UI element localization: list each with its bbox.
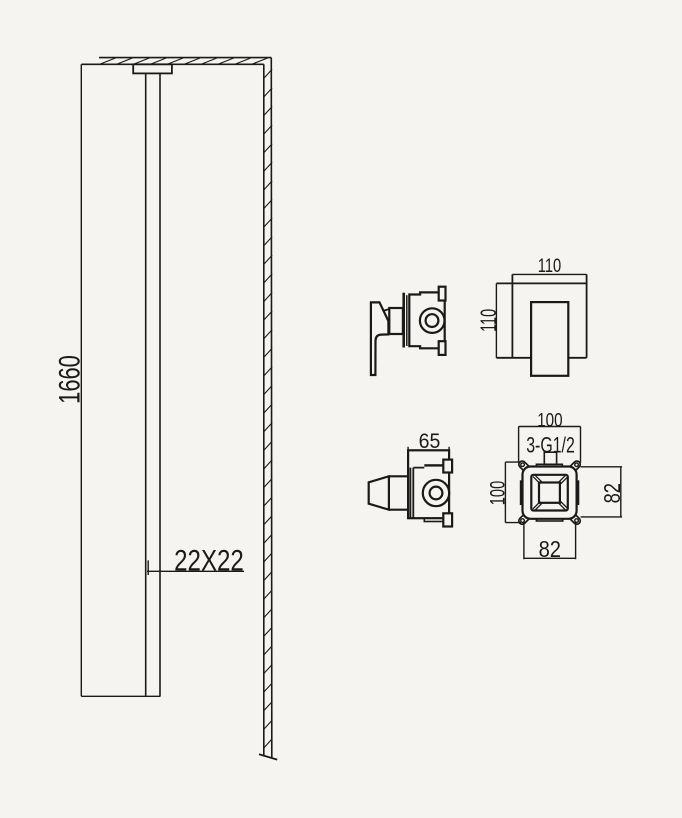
svg-text:65: 65 [419,431,441,454]
svg-text:1660: 1660 [52,355,86,404]
svg-text:3-G1/2: 3-G1/2 [526,433,575,458]
svg-text:100: 100 [537,408,563,430]
svg-text:82: 82 [600,483,625,503]
svg-text:22X22: 22X22 [174,544,244,577]
svg-text:100: 100 [484,481,509,505]
svg-text:110: 110 [477,309,502,332]
svg-text:110: 110 [538,254,561,277]
svg-text:82: 82 [539,536,561,563]
